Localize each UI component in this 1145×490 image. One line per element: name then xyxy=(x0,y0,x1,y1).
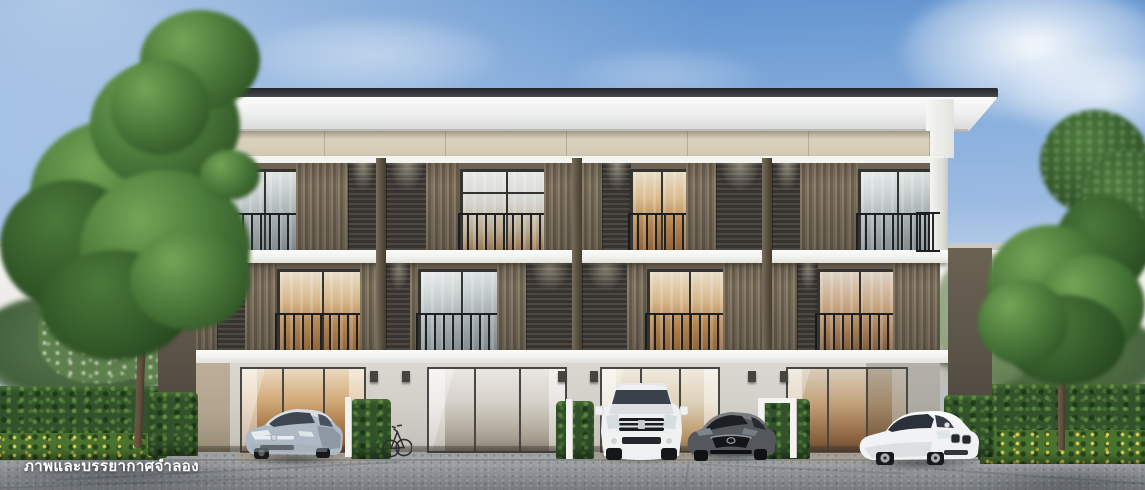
parapet-band xyxy=(204,131,930,158)
townhome-exterior-rendering: ภาพและบรรยากาศจำลอง xyxy=(0,0,1145,490)
gray-sedan-graphic xyxy=(680,398,782,464)
door-reflection xyxy=(429,369,565,451)
white-coupe-graphic xyxy=(850,398,990,472)
watermark-text: ภาพและบรรยากาศจำลอง xyxy=(24,454,199,478)
louver-panel xyxy=(602,163,631,250)
silver-sedan-car xyxy=(238,396,352,468)
balcony-railing xyxy=(275,313,368,353)
white-suv-graphic xyxy=(594,380,690,464)
white-divider-post xyxy=(566,399,573,459)
parking-divider-hedge xyxy=(556,401,594,459)
slat-panel xyxy=(296,163,348,250)
bicycle xyxy=(381,411,415,461)
louver-panel xyxy=(348,163,377,250)
unit1-floor2-window xyxy=(277,269,366,353)
white-coupe-car xyxy=(850,398,990,472)
facade-post xyxy=(572,158,582,350)
wall-light-sconce xyxy=(748,371,756,382)
balcony-railing xyxy=(645,313,731,353)
slat-panel xyxy=(723,263,762,350)
balcony-railing xyxy=(815,313,901,353)
balcony-railing xyxy=(628,213,694,253)
balcony-railing xyxy=(458,213,552,253)
slat-panel xyxy=(196,263,217,350)
unit3-floor2-window xyxy=(647,269,729,353)
louver-panel xyxy=(716,163,763,250)
floor-slab-band-upper xyxy=(192,250,948,263)
side-balcony-railing-left xyxy=(198,211,232,252)
slat-panel xyxy=(772,263,797,350)
slat-panel xyxy=(627,263,647,350)
facade-post xyxy=(762,158,772,350)
louver-panel xyxy=(582,263,628,350)
gray-sedan-car xyxy=(680,398,782,464)
louver-panel xyxy=(386,163,427,250)
unit1-floor3-window xyxy=(226,169,302,253)
window-mullion xyxy=(463,192,547,194)
slat-panel xyxy=(426,163,460,250)
floor-slab-band-lower xyxy=(192,350,948,363)
slat-panel xyxy=(893,263,940,350)
unit4-floor2-window xyxy=(817,269,899,353)
louver-panel xyxy=(772,163,801,250)
bicycle-graphic xyxy=(381,411,415,461)
ground-floor-tan-wall xyxy=(196,363,230,452)
roof-endcap-right xyxy=(926,99,954,158)
white-gate-post xyxy=(790,398,797,458)
slat-panel xyxy=(497,263,526,350)
white-suv-car xyxy=(594,380,690,464)
roof-fascia xyxy=(146,97,998,131)
slat-panel xyxy=(544,163,572,250)
louver-panel xyxy=(526,263,573,350)
parking-divider-hedge xyxy=(148,392,198,456)
unit2-glass-door xyxy=(427,367,567,453)
wall-light-sconce xyxy=(780,371,788,382)
louver-panel xyxy=(386,263,411,350)
slat-panel xyxy=(360,263,376,350)
slat-panel xyxy=(245,263,277,350)
wall-light-sconce xyxy=(558,371,566,382)
unit2-floor2-window xyxy=(418,269,503,353)
wall-light-sconce xyxy=(370,371,378,382)
balcony-railing xyxy=(416,313,505,353)
facade-post xyxy=(376,158,386,350)
slat-panel xyxy=(800,163,858,250)
balcony-railing xyxy=(224,213,304,253)
side-balcony-railing-right xyxy=(916,212,940,252)
unit3-floor3-window xyxy=(630,169,692,253)
louver-panel xyxy=(217,263,246,350)
silver-sedan-graphic xyxy=(238,396,352,468)
slat-panel xyxy=(582,163,602,250)
slat-panel xyxy=(686,163,716,250)
unit2-floor3-window xyxy=(460,169,550,253)
wall-light-sconce xyxy=(402,371,410,382)
